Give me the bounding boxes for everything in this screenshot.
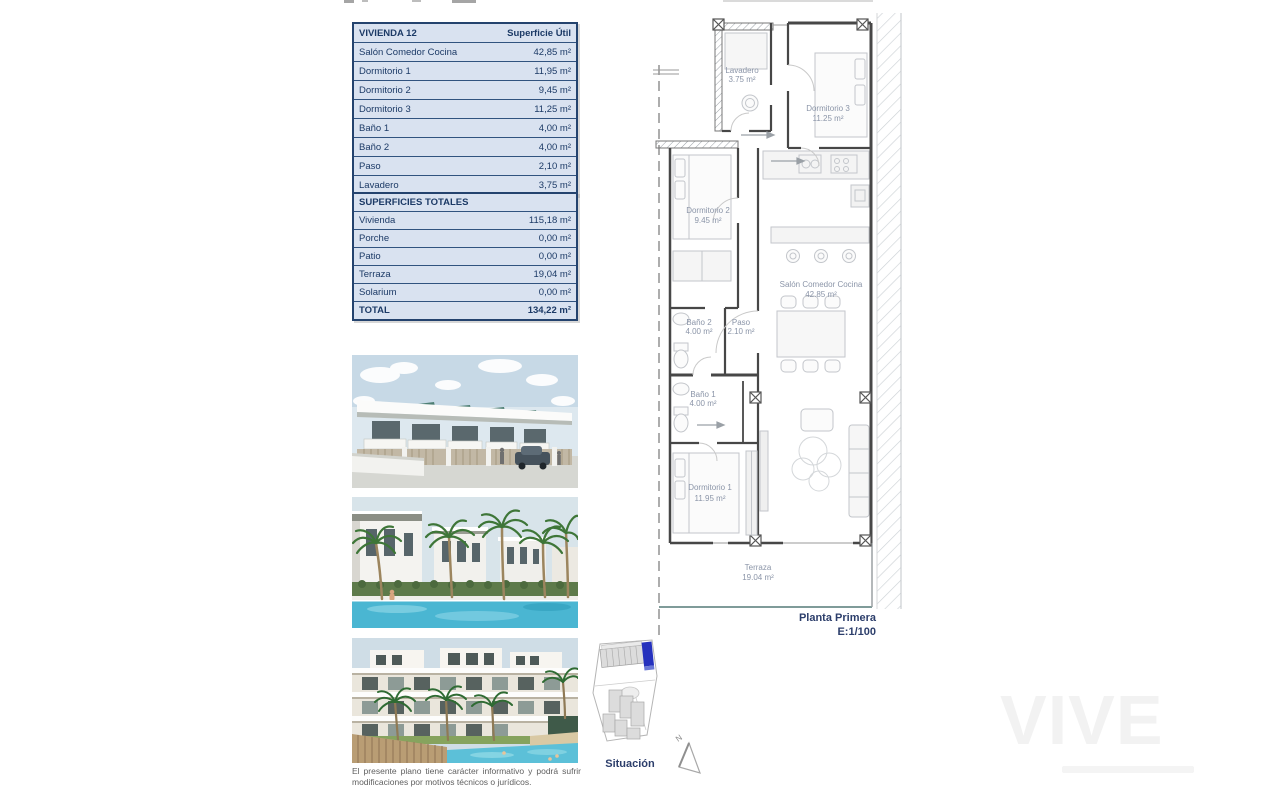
compass-north-letter: N <box>674 733 684 744</box>
hatched-party-strip <box>877 13 901 609</box>
room-area: 11.95 m² <box>695 494 726 503</box>
exterior-render-photo-1 <box>352 355 578 488</box>
room-area: 9.45 m² <box>694 216 721 225</box>
room-area: 4.00 m² <box>689 399 716 408</box>
row-value: 4,00 m² <box>539 123 571 134</box>
exterior-render-photo-3 <box>352 638 578 763</box>
row-label: Baño 1 <box>359 123 389 134</box>
row-value: 3,75 m² <box>539 180 571 191</box>
row-label: Salón Comedor Cocina <box>359 47 457 58</box>
table-row: Baño 24,00 m² <box>354 137 576 156</box>
row-value: 0,00 m² <box>539 287 571 298</box>
room-area: 19.04 m² <box>742 573 774 582</box>
room-label: Baño 2 <box>686 318 712 327</box>
totals-table-title: SUPERFICIES TOTALES <box>359 197 468 208</box>
room-label: Salón Comedor Cocina <box>780 280 863 289</box>
document-page: VIVIENDA 12 Superficie Útil Salón Comedo… <box>0 0 1280 800</box>
room-area: 3.75 m² <box>728 75 755 84</box>
page-edge-fragment <box>344 0 354 3</box>
row-label: Dormitorio 2 <box>359 85 411 96</box>
room-label: Terraza <box>745 563 772 572</box>
table-row: Salón Comedor Cocina42,85 m² <box>354 42 576 61</box>
brand-watermark: VIVE <box>1000 680 1164 760</box>
table-row: Dormitorio 29,45 m² <box>354 80 576 99</box>
plan-caption: Planta Primera E:1/100 <box>730 612 876 640</box>
exterior-wall <box>715 23 722 131</box>
table-row: Solarium0,00 m² <box>354 283 576 301</box>
dimension-stub <box>653 70 679 74</box>
room-area: 4.00 m² <box>685 327 712 336</box>
totals-table-total-row: TOTAL134,22 m² <box>354 301 576 319</box>
surface-table: VIVIENDA 12 Superficie Útil Salón Comedo… <box>352 22 578 196</box>
table-row: Paso2,10 m² <box>354 156 576 175</box>
row-value: 0,00 m² <box>539 233 571 244</box>
row-label: Baño 2 <box>359 142 389 153</box>
row-label: TOTAL <box>359 305 390 316</box>
person-at-pool <box>390 590 395 600</box>
row-value: 9,45 m² <box>539 85 571 96</box>
room-label: Dormitorio 3 <box>806 104 850 113</box>
exterior-wall <box>656 141 738 148</box>
room-area: 2.10 m² <box>727 327 754 336</box>
row-label: Dormitorio 1 <box>359 66 411 77</box>
pool <box>352 600 578 628</box>
row-label: Patio <box>359 251 381 262</box>
building-row <box>600 641 646 667</box>
row-label: Dormitorio 3 <box>359 104 411 115</box>
floor-plan: Lavadero 3.75 m² Dormitorio 3 11.25 m² D… <box>653 13 905 645</box>
surface-table-title: VIVIENDA 12 <box>359 28 417 39</box>
page-edge-fragment <box>452 0 476 3</box>
page-edge-fragment <box>723 0 873 2</box>
table-row: Dormitorio 111,95 m² <box>354 61 576 80</box>
lower-buildings <box>603 690 644 739</box>
row-label: Porche <box>359 233 389 244</box>
row-label: Solarium <box>359 287 397 298</box>
row-value: 11,25 m² <box>534 104 571 115</box>
plan-caption-scale: E:1/100 <box>730 626 876 640</box>
table-row: Patio0,00 m² <box>354 247 576 265</box>
table-row: Baño 14,00 m² <box>354 118 576 137</box>
row-value: 11,95 m² <box>534 66 571 77</box>
row-label: Terraza <box>359 269 391 280</box>
row-value: 134,22 m² <box>528 305 571 316</box>
table-row: Vivienda115,18 m² <box>354 211 576 229</box>
row-value: 4,00 m² <box>539 142 571 153</box>
totals-table-header: SUPERFICIES TOTALES <box>354 194 576 211</box>
room-label: Paso <box>732 318 751 327</box>
room-label: Lavadero <box>725 66 759 75</box>
row-label: Vivienda <box>359 215 395 226</box>
row-label: Lavadero <box>359 180 399 191</box>
row-value: 0,00 m² <box>539 251 571 262</box>
plan-caption-title: Planta Primera <box>730 612 876 626</box>
exterior-render-photo-2 <box>352 497 578 628</box>
room-label: Dormitorio 1 <box>688 483 732 492</box>
page-edge-fragment <box>412 0 421 2</box>
totals-table: SUPERFICIES TOTALES Vivienda115,18 m² Po… <box>352 192 578 321</box>
room-label: Baño 1 <box>690 390 716 399</box>
row-value: 42,85 m² <box>534 47 572 58</box>
room-area: 11.25 m² <box>813 114 844 123</box>
row-label: Paso <box>359 161 381 172</box>
row-value: 115,18 m² <box>529 215 571 226</box>
disclaimer-text: El presente plano tiene carácter informa… <box>352 766 581 788</box>
brand-watermark-subline <box>1062 766 1194 773</box>
row-value: 2,10 m² <box>539 161 571 172</box>
table-row: Porche0,00 m² <box>354 229 576 247</box>
row-value: 19,04 m² <box>534 269 572 280</box>
site-plan-label: Situación <box>588 758 672 770</box>
site-plan <box>590 638 670 758</box>
surface-table-header-right: Superficie Útil <box>507 28 571 39</box>
page-edge-fragment <box>362 0 368 2</box>
north-compass: N <box>672 730 706 780</box>
room-area: 42.85 m² <box>805 290 837 299</box>
table-row: Dormitorio 311,25 m² <box>354 99 576 118</box>
surface-table-header: VIVIENDA 12 Superficie Útil <box>354 24 576 42</box>
table-row: Terraza19,04 m² <box>354 265 576 283</box>
room-label: Dormitorio 2 <box>686 206 730 215</box>
